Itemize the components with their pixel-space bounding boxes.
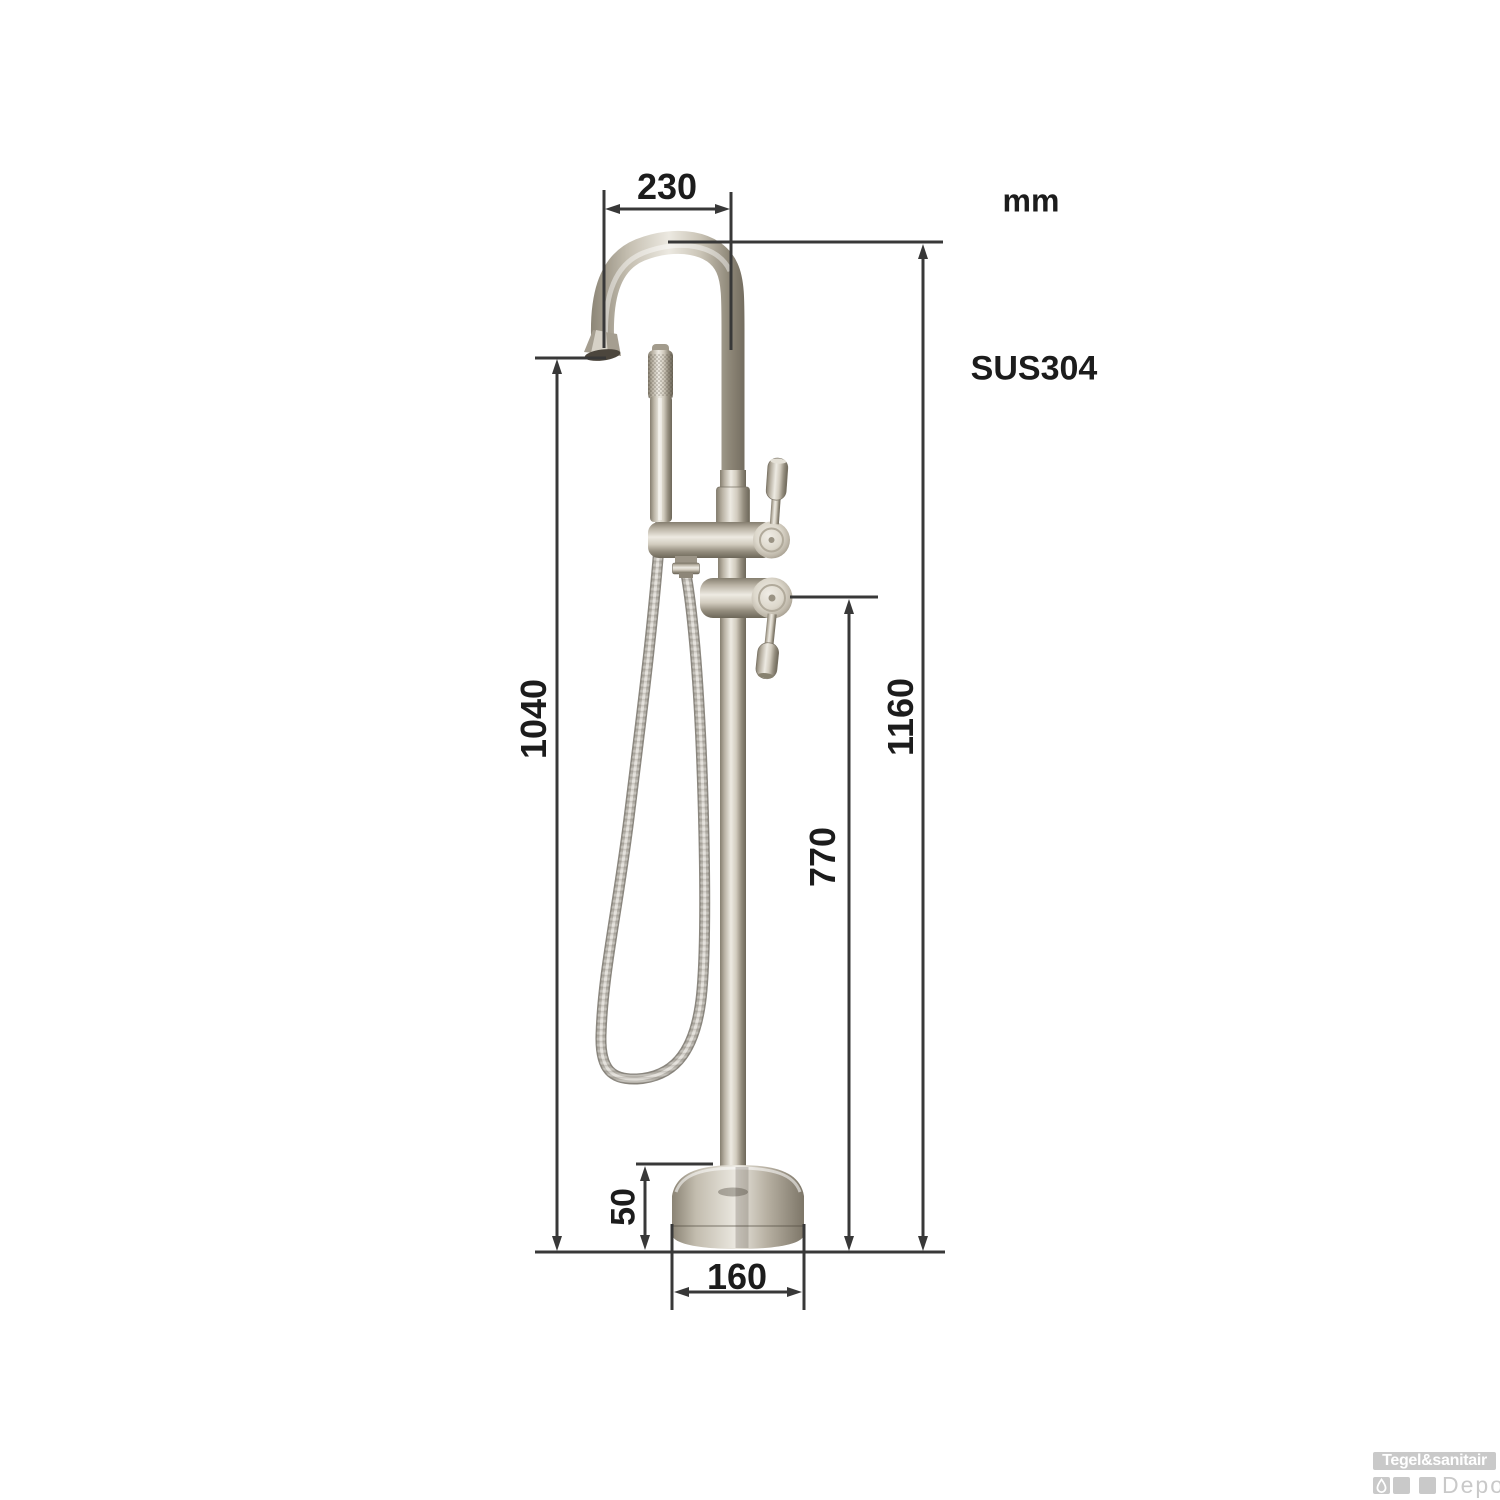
dim-770-lines (790, 597, 878, 1251)
dim-handle-height-label: 770 (802, 827, 844, 887)
lower-valve-body (700, 578, 793, 619)
brand-watermark-sub: Depot (1442, 1477, 1500, 1494)
watermark-square (1419, 1477, 1436, 1494)
upper-handle-lever (764, 457, 789, 524)
hose-connector-nut (673, 556, 700, 578)
dimension-diagram-canvas: 230 mm SUS304 1040 1160 770 50 160 Tegel… (0, 0, 1500, 1500)
brand-watermark: Tegel&sanitair Depot (1373, 1452, 1497, 1494)
upper-valve-body (648, 522, 790, 559)
dim-spout-reach-label: 230 (637, 166, 697, 208)
dim-1040-lines (535, 358, 606, 1251)
dim-base-height-label: 50 (605, 1188, 644, 1226)
water-drop-icon (1373, 1477, 1390, 1494)
shower-hose (601, 520, 705, 1079)
watermark-square (1393, 1477, 1410, 1494)
hand-shower-wand (648, 344, 673, 522)
floor-base (672, 1165, 804, 1249)
unit-label: mm (1003, 183, 1060, 220)
brand-watermark-name: Tegel&sanitair (1373, 1452, 1496, 1470)
material-label: SUS304 (971, 350, 1098, 389)
dim-base-diameter-label: 160 (707, 1256, 767, 1298)
lower-handle-lever (755, 613, 783, 680)
dim-total-height-label: 1160 (880, 678, 922, 756)
dim-outlet-height-label: 1040 (513, 679, 555, 759)
faucet-drawing (584, 242, 804, 1249)
